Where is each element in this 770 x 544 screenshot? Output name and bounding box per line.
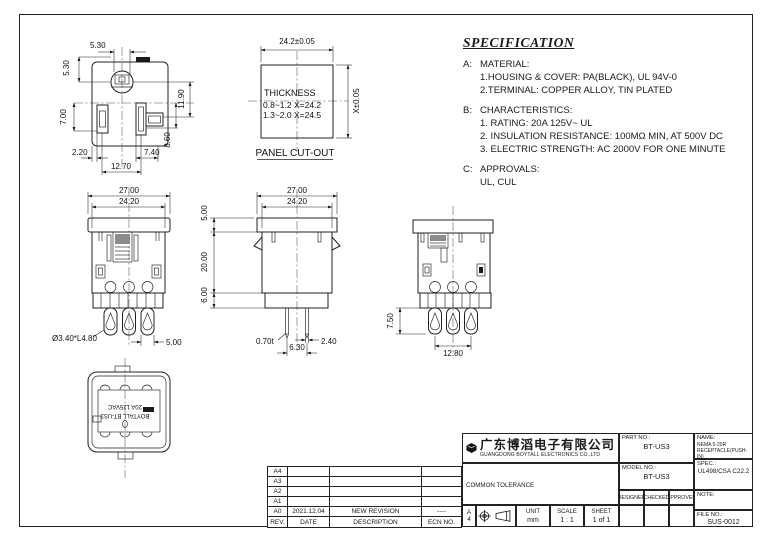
- spec-line: 2.TERMINAL: COPPER ALLOY, TIN PLATED: [463, 84, 755, 97]
- section-heading: CHARACTERISTICS:: [480, 104, 572, 117]
- sheet-cell: SHEET 1 of 1: [584, 505, 619, 527]
- file-no-value: SUS-0012: [695, 519, 752, 526]
- dim-label: Ø3.40*L4.80: [52, 334, 97, 343]
- body-outline: [413, 220, 493, 308]
- rev-cell: [422, 497, 461, 507]
- rev-cell: A1: [268, 497, 288, 507]
- rev-cell: [330, 497, 422, 507]
- name-label: NAME:: [695, 434, 752, 442]
- model-no-cell: MODEL NO.: BT-US3: [619, 463, 694, 490]
- dim-label: 7.50: [386, 313, 395, 329]
- rev-header: REV.: [268, 517, 288, 527]
- marking-text: 20A 125VAC: [107, 403, 142, 409]
- view-rear: BOYTALL BT-US3 20A 125VAC: [70, 356, 198, 484]
- model-no-value: BT-US3: [620, 472, 693, 481]
- designer-signature-cell: [619, 505, 644, 527]
- revision-table: A4 A3 A2 A1 A0 2021.12.04 NEW REVISION -…: [267, 466, 462, 528]
- unit-value: mm: [527, 517, 539, 524]
- spec-section-c: C: APPROVALS:: [463, 163, 755, 176]
- section-letter: C:: [463, 163, 480, 176]
- dim-label: 24.20: [287, 197, 308, 206]
- note-line: 0.8~1.2 X=24.2: [263, 100, 321, 110]
- approved-signature-cell: [669, 505, 694, 527]
- dim-label: 27.00: [119, 186, 140, 195]
- note-line: THICKNESS: [264, 88, 316, 98]
- view-front-elevation: 27.00 24.20 Ø3.40*L4.80 5.00: [52, 183, 202, 355]
- dim-label: 2.20: [72, 148, 88, 157]
- product-marking: BOYTALL BT-US3 20A 125VAC: [93, 403, 154, 422]
- paper-size-cell: A 4: [462, 505, 476, 527]
- scale-cell: SCALE 1 : 1: [550, 505, 584, 527]
- dim-label: 11.90: [177, 89, 186, 109]
- dim-label: 7.40: [144, 148, 160, 157]
- note-line: 1.3~2.0 X=24.5: [263, 110, 321, 120]
- section-letter: B:: [463, 104, 480, 117]
- part-no-value: BT-US3: [620, 442, 693, 451]
- view-side-elevation: 27.00 24.20 5.00 20.00 6.00 0.70t 2.40 6…: [198, 183, 358, 365]
- view-side-elevation-2: 7.50 12.80: [388, 198, 528, 366]
- checked-header: CHECKED: [644, 490, 669, 505]
- dim-label: 27.00: [287, 186, 308, 195]
- section-heading: MATERIAL:: [480, 58, 529, 71]
- dim-label: 24.2±0.05: [279, 37, 315, 46]
- sheet-label: SHEET: [591, 509, 611, 515]
- dimension-labels: 7.50 12.80: [386, 313, 464, 358]
- rev-cell: [288, 497, 330, 507]
- view-front-face: 5.30 5.30 7.00 11.90 8.60 2.20 7.40 12.7…: [52, 25, 222, 187]
- note-cell: NOTE:: [694, 490, 753, 510]
- thickness-note: THICKNESS 0.8~1.2 X=24.2 1.3~2.0 X=24.5: [263, 88, 321, 120]
- marking-text: BOYTALL BT-US3: [100, 412, 150, 418]
- name-value-line2: RECEPTACLE(PUSH-IN): [697, 448, 750, 459]
- dim-label: 6.30: [289, 343, 305, 352]
- dimension-lines: [210, 192, 337, 356]
- sheet-value: 1 of 1: [593, 517, 611, 524]
- dimension-labels: 5.30 5.30 7.00 11.90 8.60 2.20 7.40 12.7…: [59, 41, 186, 171]
- paper-size-line1: A: [467, 509, 471, 517]
- spec-line: UL, CUL: [463, 176, 755, 189]
- dimension-labels: 27.00 24.20 5.00 20.00 6.00 0.70t 2.40 6…: [200, 186, 337, 352]
- spec-line: 3. ELECTRIC STRENGTH: AC 2000V FOR ONE M…: [463, 143, 755, 156]
- body-outline: [254, 218, 340, 308]
- spec-line: 1. RATING: 20A 125V~ UL: [463, 117, 755, 130]
- scale-value: 1 : 1: [560, 517, 574, 524]
- dim-label: X±0.05: [352, 88, 361, 114]
- dim-label: 5.00: [200, 205, 209, 221]
- dim-label: 12.70: [111, 162, 132, 171]
- rev-header: ECN NO.: [422, 517, 461, 527]
- part-no-label: PART NO.:: [620, 434, 693, 442]
- rev-cell: ----: [422, 507, 461, 517]
- rev-cell: [288, 477, 330, 487]
- checked-signature-cell: [644, 505, 669, 527]
- projection-symbol-cell: [476, 505, 516, 527]
- tolerance-title: COMMON TOLERANCE: [466, 482, 615, 490]
- rev-cell: NEW REVISION: [330, 507, 422, 517]
- file-no-cell: FILE NO.: SUS-0012: [694, 510, 753, 527]
- rev-cell: 2021.12.04: [288, 507, 330, 517]
- view-caption: PANEL CUT-OUT: [256, 148, 335, 159]
- spec-section-a: A: MATERIAL:: [463, 58, 755, 71]
- spec-line: 1.HOUSING & COVER: PA(BLACK), UL 94V-0: [463, 71, 755, 84]
- dim-label: 12.80: [443, 349, 464, 358]
- dim-label: 0.70t: [256, 337, 275, 346]
- company-cell: 广东博滔电子有限公司 GUANGDONG BOYTALL ELECTRONICS…: [462, 433, 619, 463]
- rev-cell: A4: [268, 467, 288, 477]
- section-heading: APPROVALS:: [480, 163, 540, 176]
- rev-cell: [330, 477, 422, 487]
- unit-cell: UNIT mm: [516, 505, 550, 527]
- dim-label: 5.00: [166, 338, 182, 347]
- designer-header: DESIGNER: [619, 490, 644, 505]
- tolerance-cell: COMMON TOLERANCE DIMENSION: ANGULAR: .00…: [462, 463, 619, 505]
- company-logo-icon: [466, 436, 477, 460]
- rev-cell: [288, 467, 330, 477]
- rev-cell: [330, 487, 422, 497]
- model-no-label: MODEL NO.:: [620, 464, 693, 472]
- file-no-label: FILE NO.:: [695, 511, 752, 519]
- third-angle-projection-icon: [478, 508, 514, 524]
- specification-block: SPECIFICATION A: MATERIAL: 1.HOUSING & C…: [463, 36, 755, 189]
- rev-cell: [422, 477, 461, 487]
- spec-value: UL498/CSA C22.2: [695, 468, 752, 475]
- title-block: 广东博滔电子有限公司 GUANGDONG BOYTALL ELECTRONICS…: [462, 433, 753, 527]
- rev-cell: [422, 487, 461, 497]
- dim-label: 6.00: [200, 287, 209, 303]
- dim-label: 2.40: [321, 337, 337, 346]
- company-name-cn: 广东博滔电子有限公司: [480, 438, 615, 452]
- dim-label: 24.20: [119, 197, 140, 206]
- rev-cell: A2: [268, 487, 288, 497]
- dim-label: 5.30: [90, 41, 106, 50]
- rev-header: DATE: [288, 517, 330, 527]
- rev-header: DESCRIPTION: [330, 517, 422, 527]
- company-name-en: GUANGDONG BOYTALL ELECTRONICS CO.,LTD: [480, 452, 615, 458]
- spec-section-b: B: CHARACTERISTICS:: [463, 104, 755, 117]
- dim-label: 7.00: [59, 109, 68, 125]
- approved-header: APPROVED: [669, 490, 694, 505]
- section-letter: A:: [463, 58, 480, 71]
- spec-label: SPEC.:: [695, 460, 752, 468]
- rev-cell: A0: [268, 507, 288, 517]
- spec-line: 2. INSULATION RESISTANCE: 100MΩ MIN, AT …: [463, 130, 755, 143]
- rev-cell: [288, 487, 330, 497]
- specification-title: SPECIFICATION: [463, 36, 755, 49]
- note-label: NOTE:: [695, 491, 752, 499]
- dim-label: 5.30: [62, 60, 71, 76]
- dim-label: 8.60: [163, 132, 172, 148]
- rev-cell: A3: [268, 477, 288, 487]
- scale-label: SCALE: [557, 509, 577, 515]
- paper-size-line2: 4: [467, 516, 471, 524]
- spec-cell: SPEC.: UL498/CSA C22.2: [694, 459, 753, 490]
- drawing-sheet: 5.30 5.30 7.00 11.90 8.60 2.20 7.40 12.7…: [0, 0, 770, 544]
- name-cell: NAME: NEMA 5-20R RECEPTACLE(PUSH-IN): [694, 433, 753, 459]
- part-no-cell: PART NO.: BT-US3: [619, 433, 694, 463]
- view-panel-cutout: 24.2±0.05 X±0.05 THICKNESS 0.8~1.2 X=24.…: [228, 28, 396, 170]
- unit-label: UNIT: [526, 509, 540, 515]
- rev-cell: [330, 467, 422, 477]
- dim-label: 20.00: [200, 251, 209, 272]
- rev-cell: [422, 467, 461, 477]
